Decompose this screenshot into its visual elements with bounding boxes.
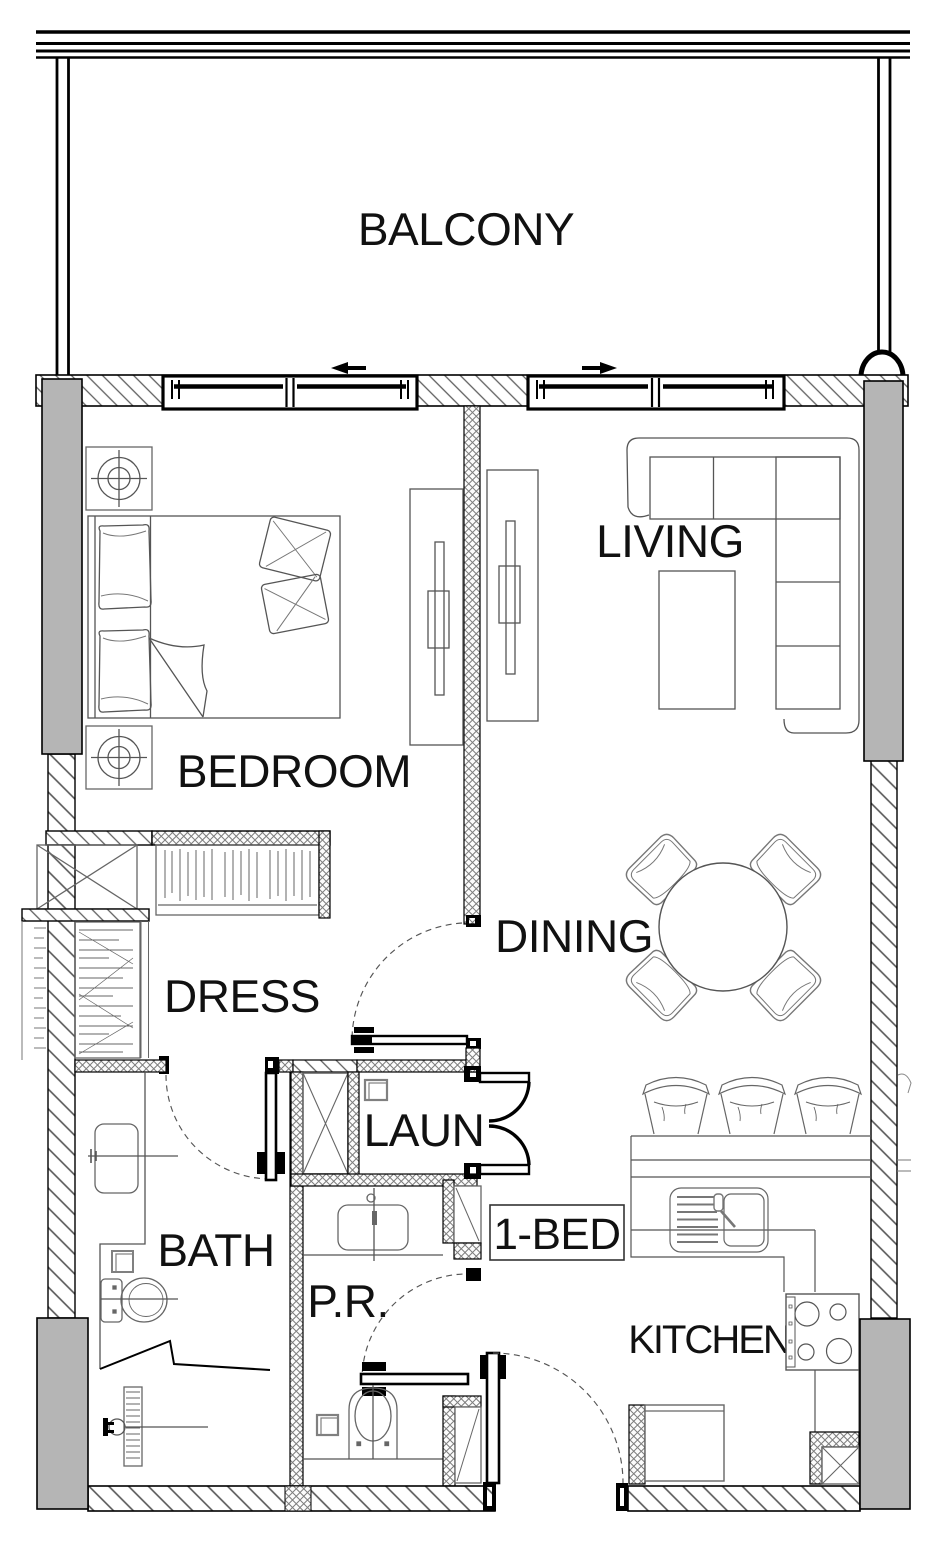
svg-text:BEDROOM: BEDROOM [177, 745, 411, 797]
svg-text:BALCONY: BALCONY [358, 203, 574, 255]
svg-text:DRESS: DRESS [164, 970, 320, 1022]
svg-text:KITCHEN: KITCHEN [628, 1318, 790, 1362]
svg-text:DINING: DINING [495, 910, 653, 962]
svg-text:LAUN: LAUN [364, 1104, 485, 1156]
svg-text:LIVING: LIVING [596, 515, 744, 567]
svg-text:1-BED: 1-BED [493, 1210, 620, 1259]
svg-text:BATH: BATH [157, 1224, 274, 1276]
svg-text:P.R.: P.R. [307, 1275, 389, 1327]
